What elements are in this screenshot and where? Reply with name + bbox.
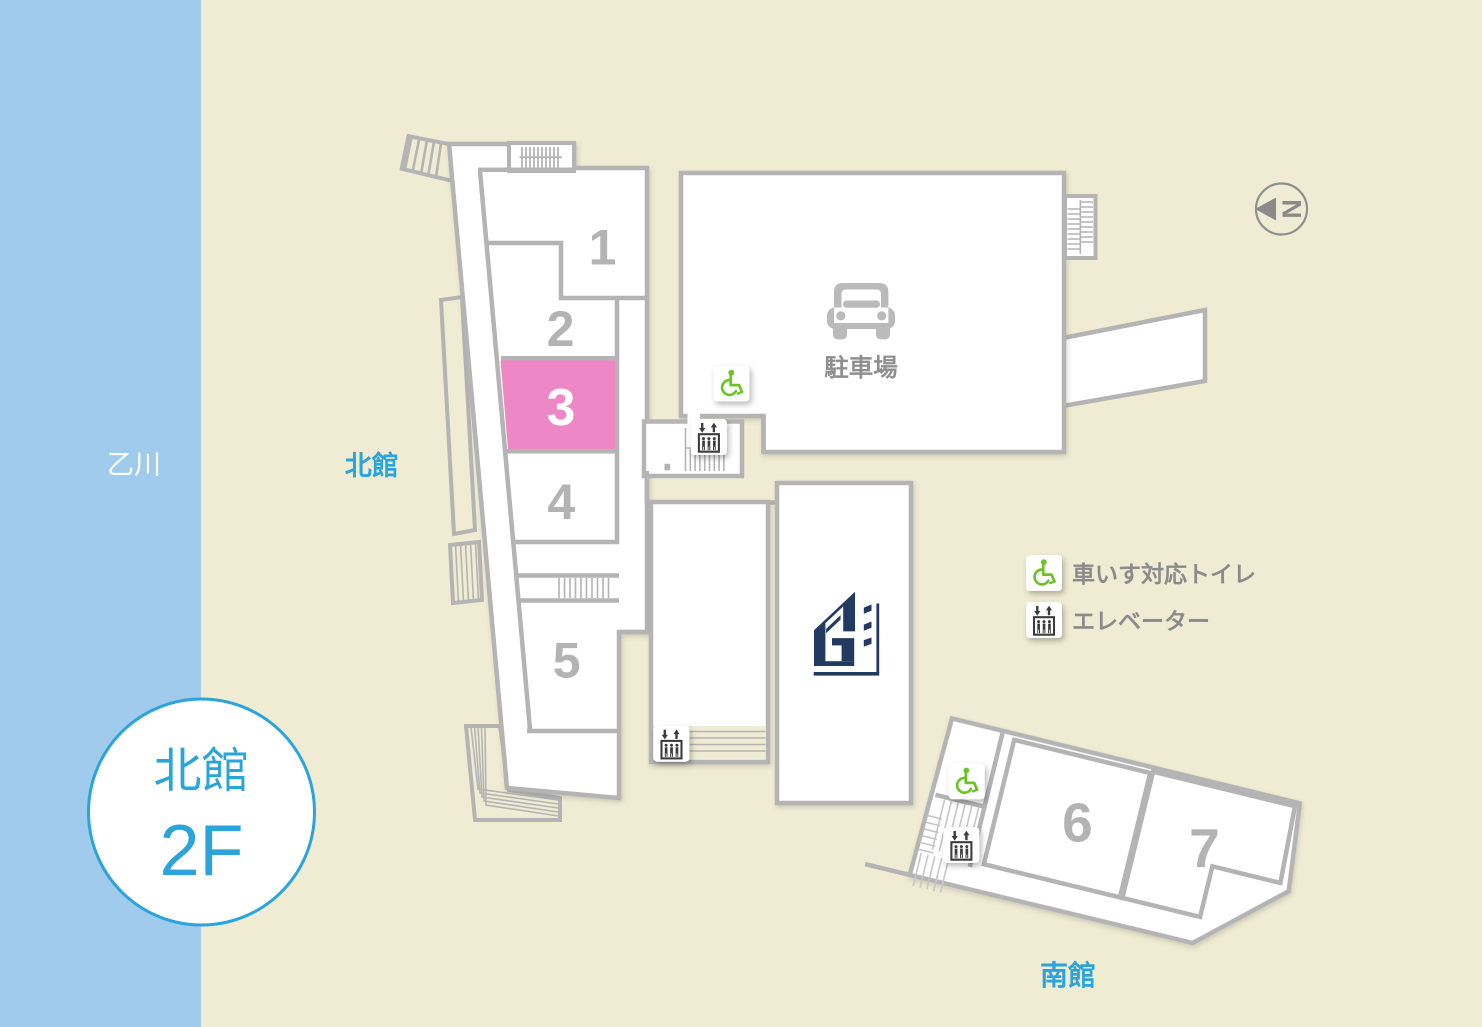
svg-text:駐車場: 駐車場	[824, 353, 898, 382]
svg-text:1: 1	[589, 220, 617, 276]
svg-text:北館: 北館	[345, 450, 399, 481]
svg-text:6: 6	[1062, 792, 1093, 854]
svg-text:車いす対応トイレ: 車いす対応トイレ	[1072, 561, 1256, 587]
svg-text:7: 7	[1189, 817, 1220, 879]
svg-text:北館: 北館	[153, 745, 249, 798]
svg-text:乙川: 乙川	[107, 450, 161, 480]
svg-text:2F: 2F	[159, 811, 243, 891]
svg-text:N: N	[1277, 199, 1307, 219]
svg-text:3: 3	[547, 379, 576, 437]
svg-text:南館: 南館	[1040, 959, 1096, 991]
svg-text:4: 4	[547, 474, 575, 530]
svg-text:2: 2	[547, 301, 575, 357]
svg-text:エレベーター: エレベーター	[1072, 608, 1210, 634]
svg-text:5: 5	[553, 633, 581, 689]
